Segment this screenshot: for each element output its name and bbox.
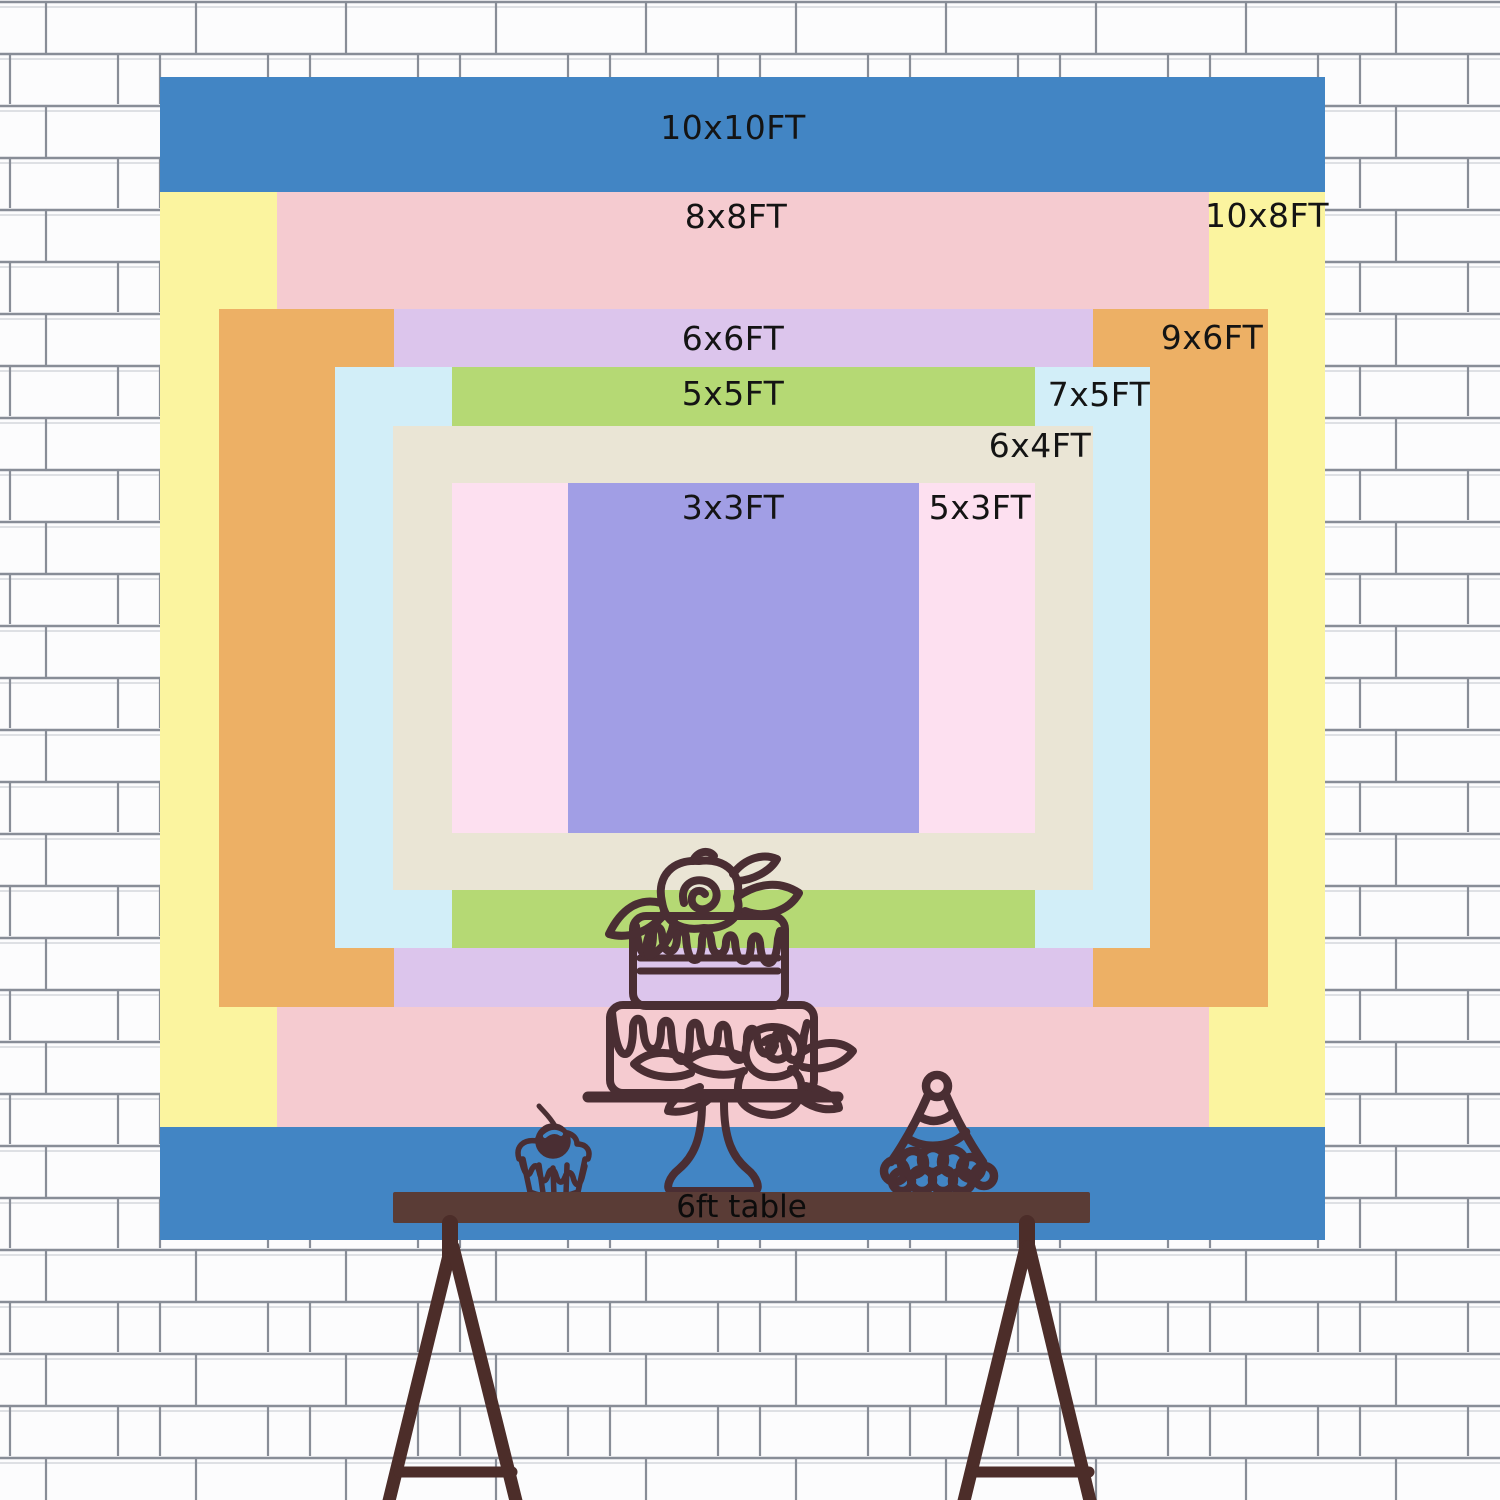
- cake-stand-pedestal: [668, 1103, 758, 1191]
- table-right-trestle: [963, 1223, 1091, 1500]
- cake-rose-spiral: [683, 880, 717, 909]
- cupcake-cherry-stem: [539, 1106, 555, 1126]
- size-chart-scene: 10x10FT 10x8FT 8x8FT 9x6FT 6x6FT 7x5FT 5…: [0, 0, 1500, 1500]
- size-label-9x6: 9x6FT: [1161, 321, 1264, 354]
- cake-stripe-lines: [640, 958, 778, 971]
- cake-flower-spiral: [764, 1037, 788, 1059]
- cake-flower-petals: [634, 1043, 853, 1115]
- table-legs: [388, 1223, 1091, 1500]
- size-label-5x3: 5x3FT: [929, 491, 1032, 524]
- size-label-5x5: 5x5FT: [682, 377, 785, 410]
- size-label-3x3: 3x3FT: [682, 491, 785, 524]
- cake-icon: [588, 852, 853, 1191]
- size-label-6x6: 6x6FT: [682, 322, 785, 355]
- size-label-8x8: 8x8FT: [685, 200, 788, 233]
- table-size-label: 6ft table: [393, 1192, 1090, 1223]
- cupcake-icon: [518, 1106, 589, 1197]
- table-left-trestle: [388, 1223, 517, 1500]
- size-label-6x4: 6x4FT: [989, 429, 1092, 462]
- party-hat-trim: [884, 1148, 994, 1191]
- size-label-7x5: 7x5FT: [1048, 378, 1151, 411]
- size-label-10x8: 10x8FT: [1205, 199, 1329, 232]
- party-hat-icon: [884, 1075, 994, 1191]
- size-label-10x10: 10x10FT: [660, 111, 806, 144]
